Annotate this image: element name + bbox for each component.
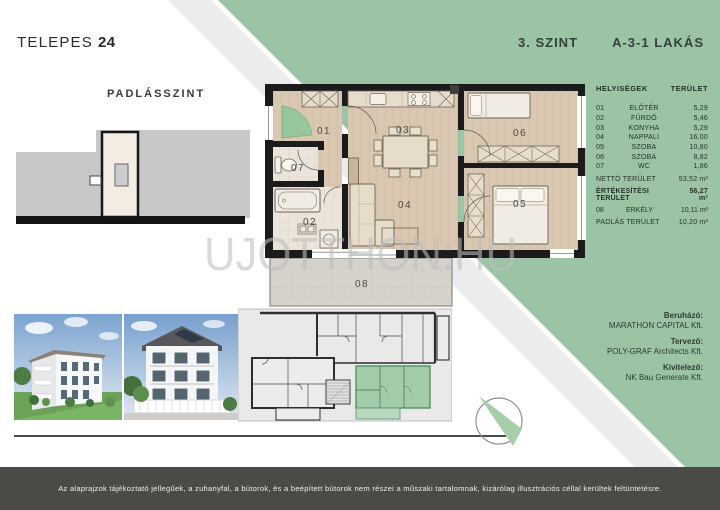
attic-section-drawing bbox=[14, 128, 250, 228]
row-name: WC bbox=[611, 163, 677, 170]
table-row: 04 NAPPALI 16,00 bbox=[596, 133, 708, 143]
credits: Beruházó: MARATHON CAPITAL Kft. Tervező:… bbox=[607, 311, 703, 389]
credit-company: MARATHON CAPITAL Kft. bbox=[607, 321, 703, 331]
row-area: 8,82 bbox=[677, 154, 708, 161]
credit-role: Kivitelező: bbox=[607, 363, 703, 373]
shaft bbox=[450, 85, 459, 94]
table-row: 05 SZOBA 10,80 bbox=[596, 143, 708, 153]
room-label-03: 03 bbox=[396, 125, 410, 136]
brand-logo: TELEPES24 bbox=[17, 34, 116, 51]
attic-area-value: 10,20 m² bbox=[679, 219, 708, 226]
compass bbox=[470, 392, 530, 452]
sales-label: ÉRTÉKESÍTÉSI TERÜLET bbox=[596, 188, 680, 202]
sales-area-row: ÉRTÉKESÍTÉSI TERÜLET 56,27 m² bbox=[596, 188, 708, 202]
table-row: 01 ELŐTÉR 5,29 bbox=[596, 104, 708, 114]
row-num: 03 bbox=[596, 125, 611, 132]
row-name: FÜRDŐ bbox=[611, 115, 677, 122]
col-area: TERÜLET bbox=[671, 84, 708, 93]
key-plan bbox=[238, 306, 452, 426]
room-label-01: 01 bbox=[317, 126, 331, 137]
row-num: 02 bbox=[596, 115, 611, 122]
attic-door bbox=[115, 164, 128, 186]
hall-door-leaf bbox=[349, 158, 359, 184]
watermark: UJOTTHON:HU bbox=[204, 227, 517, 281]
row-name: SZOBA bbox=[611, 154, 677, 161]
kitchen-sink bbox=[370, 94, 386, 105]
row-name: SZOBA bbox=[611, 144, 677, 151]
row-area: 5,46 bbox=[677, 115, 708, 122]
row-area: 10,80 bbox=[677, 144, 708, 151]
entry-wardrobe bbox=[302, 91, 338, 107]
credit-role: Beruházó: bbox=[607, 311, 703, 321]
table-row: 07 WC 1,86 bbox=[596, 162, 708, 172]
building-photo-1 bbox=[14, 314, 122, 420]
credit-company: NK Bau Generate Kft. bbox=[607, 373, 703, 383]
net-area-row: NETTÓ TERÜLET 53,52 m² bbox=[596, 176, 708, 183]
table-row: 02 FÜRDŐ 5,46 bbox=[596, 114, 708, 124]
area-table-header: HELYISÉGEK TERÜLET bbox=[596, 84, 708, 93]
credit-role: Tervező: bbox=[607, 337, 703, 347]
row-num: 05 bbox=[596, 144, 611, 151]
row-area: 1,86 bbox=[677, 163, 708, 170]
bathtub bbox=[275, 189, 320, 212]
disclaimer-text: Az alaprajzok tájékoztató jellegűek, a z… bbox=[58, 484, 662, 493]
area-table: HELYISÉGEK TERÜLET 01 ELŐTÉR 5,29 02 FÜR… bbox=[596, 84, 708, 226]
attic-area-row: PADLÁS TERÜLET 10,20 m² bbox=[596, 219, 708, 226]
attic-section-label: PADLÁSSZINT bbox=[107, 88, 205, 100]
row-num: 01 bbox=[596, 105, 611, 112]
row-name: ELŐTÉR bbox=[611, 105, 677, 112]
row-name: NAPPALI bbox=[611, 134, 677, 141]
north-arrow-icon bbox=[479, 396, 522, 446]
room-label-04: 04 bbox=[398, 200, 412, 211]
row-area: 5,29 bbox=[677, 125, 708, 132]
highlighted-unit bbox=[356, 366, 430, 408]
credit-company: POLY-GRAF Architects Kft. bbox=[607, 347, 703, 357]
unit-label: A-3-1 LAKÁS bbox=[612, 35, 704, 50]
net-label: NETTÓ TERÜLET bbox=[596, 176, 656, 183]
row-name: KONYHA bbox=[611, 125, 677, 132]
single-bed bbox=[468, 93, 530, 118]
stove bbox=[408, 93, 430, 106]
floor-label: 3. SZINT bbox=[518, 35, 578, 50]
col-rooms: HELYISÉGEK bbox=[596, 84, 648, 93]
net-value: 53,52 m² bbox=[679, 176, 708, 183]
floor-unit-header: 3. SZINT A-3-1 LAKÁS bbox=[518, 35, 704, 50]
sales-value: 56,27 m² bbox=[680, 188, 708, 202]
table-row: 06 SZOBA 8,82 bbox=[596, 152, 708, 162]
brochure-page: TELEPES24 3. SZINT A-3-1 LAKÁS PADLÁSSZI… bbox=[0, 0, 720, 510]
row-area: 5,29 bbox=[677, 105, 708, 112]
row-num: 06 bbox=[596, 154, 611, 161]
row-num: 04 bbox=[596, 134, 611, 141]
credit-contractor: Kivitelező: NK Bau Generate Kft. bbox=[607, 363, 703, 382]
row-name: ERKÉLY bbox=[611, 207, 668, 214]
room-label-07: 07 bbox=[291, 163, 305, 174]
credit-architect: Tervező: POLY-GRAF Architects Kft. bbox=[607, 337, 703, 356]
row-num: 07 bbox=[596, 163, 611, 170]
disclaimer-bar: Az alaprajzok tájékoztató jellegűek, a z… bbox=[0, 467, 720, 510]
credit-developer: Beruházó: MARATHON CAPITAL Kft. bbox=[607, 311, 703, 330]
balcony-row: 08 ERKÉLY 10,11 m² bbox=[596, 207, 708, 214]
table-row: 03 KONYHA 5,29 bbox=[596, 123, 708, 133]
stairwell bbox=[326, 380, 350, 404]
highlighted-balcony bbox=[356, 408, 400, 419]
row-area: 10,11 m² bbox=[668, 207, 708, 214]
row-num: 08 bbox=[596, 207, 611, 214]
brand-number: 24 bbox=[98, 34, 116, 51]
attic-area-label: PADLÁS TERÜLET bbox=[596, 219, 660, 226]
divider-rule bbox=[14, 435, 506, 437]
room-label-06: 06 bbox=[513, 128, 527, 139]
row-area: 16,00 bbox=[677, 134, 708, 141]
brand-name: TELEPES bbox=[17, 34, 93, 51]
attic-hatch bbox=[90, 176, 101, 185]
building-photo-2 bbox=[124, 314, 238, 420]
room-label-05: 05 bbox=[513, 199, 527, 210]
